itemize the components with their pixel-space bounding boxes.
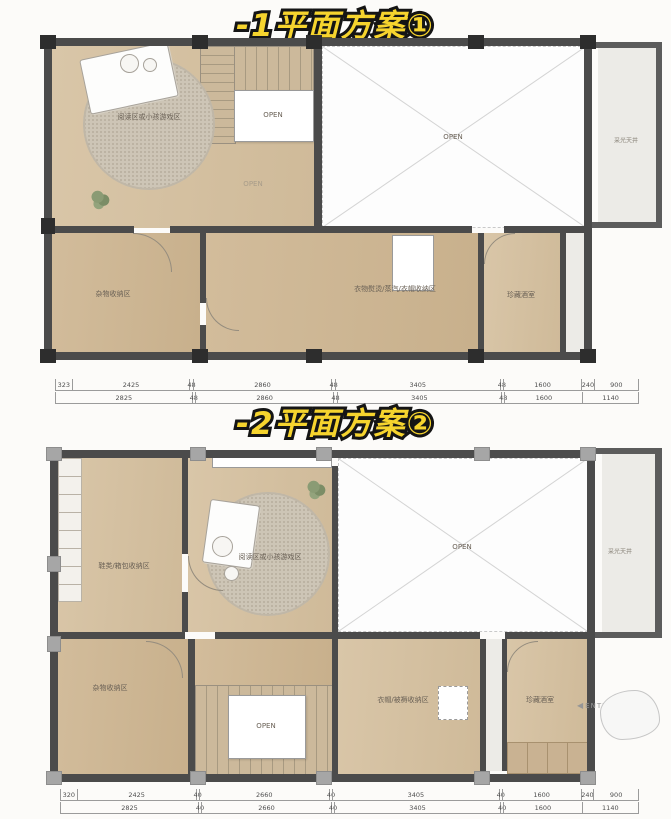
dim-segment: 1600 <box>503 802 582 813</box>
column-block <box>316 447 332 461</box>
column-block <box>190 771 206 785</box>
enter-arrow-icon: ◀ <box>577 702 583 710</box>
plan2-void-open-label: OPEN <box>452 543 471 551</box>
wall-segment <box>50 450 58 782</box>
column-block <box>47 556 61 572</box>
wall-segment <box>595 448 662 454</box>
column-block <box>190 447 206 461</box>
dim-segment: 3405 <box>332 789 499 800</box>
column-block <box>580 447 596 461</box>
dim-segment: 2660 <box>201 802 331 813</box>
plan2-shoe-shelf <box>58 458 82 602</box>
plan2-corridor-floor <box>195 639 332 685</box>
wall-segment <box>480 639 486 771</box>
dim-segment: 1140 <box>582 802 638 813</box>
dim-segment: 240 <box>581 789 594 800</box>
column-block <box>474 447 490 461</box>
plan2-tree-sketch <box>600 690 660 740</box>
wall-segment <box>333 632 480 639</box>
column-block <box>580 771 596 785</box>
wall-segment <box>655 448 662 638</box>
wall-segment <box>332 466 338 632</box>
wall-segment <box>182 592 188 632</box>
wall-segment <box>50 632 185 639</box>
plan2-dashed-hatch <box>438 686 468 720</box>
plan2-shaft-floor <box>486 639 502 771</box>
plan2-pouf-seat <box>224 566 239 581</box>
dim-segment: 2425 <box>77 789 196 800</box>
plan2-dim-row-1: 320 2425 40 2660 40 3405 40 1600 240 900 <box>60 789 639 801</box>
column-block <box>47 636 61 652</box>
plan2-pouf-seat <box>212 536 233 557</box>
column-block <box>474 771 490 785</box>
plan2-rug-area-label: 阅读区或小孩游戏区 <box>239 552 302 562</box>
plan2-wardrobe-label: 衣帽/被褥收纳区 <box>377 695 428 705</box>
plan2-lightwell-floor <box>602 454 655 632</box>
plan2-shoes-label: 鞋类/箱包收纳区 <box>98 561 149 571</box>
wall-segment <box>215 632 333 639</box>
plan2-dim-row-2: 2825 40 2660 40 3405 40 1600 1140 <box>60 802 639 814</box>
plan2-stair-open-label: OPEN <box>256 722 275 730</box>
column-block <box>46 447 62 461</box>
dim-segment: 2660 <box>199 789 329 800</box>
wall-segment <box>505 632 592 639</box>
plan2-floorplan: OPEN 采光天井 鞋类/箱包收纳区 阅读区或小孩游戏区 OPEN 杂物收纳区 … <box>0 0 671 819</box>
plan2-lightwell-label: 采光天井 <box>608 547 632 556</box>
wall-segment <box>587 450 595 782</box>
dim-segment: 1600 <box>502 789 581 800</box>
column-block <box>46 771 62 785</box>
dim-segment: 2825 <box>60 802 198 813</box>
plan2-storage-label: 杂物收纳区 <box>93 683 128 693</box>
column-block <box>316 771 332 785</box>
plan2-plant-sketch <box>304 478 328 500</box>
plan2-wine-label: 珍藏酒室 <box>526 695 554 705</box>
plan2-wine-cabinet <box>507 742 589 774</box>
page: { "meta": { "type": "basement-floor-plan… <box>0 0 671 819</box>
wall-segment <box>182 458 188 554</box>
dim-segment: 320 <box>60 789 77 800</box>
wall-segment <box>188 639 195 774</box>
wall-segment <box>332 639 338 774</box>
wall-segment <box>595 632 655 638</box>
dim-segment: 900 <box>593 789 638 800</box>
dim-segment: 3405 <box>334 802 500 813</box>
